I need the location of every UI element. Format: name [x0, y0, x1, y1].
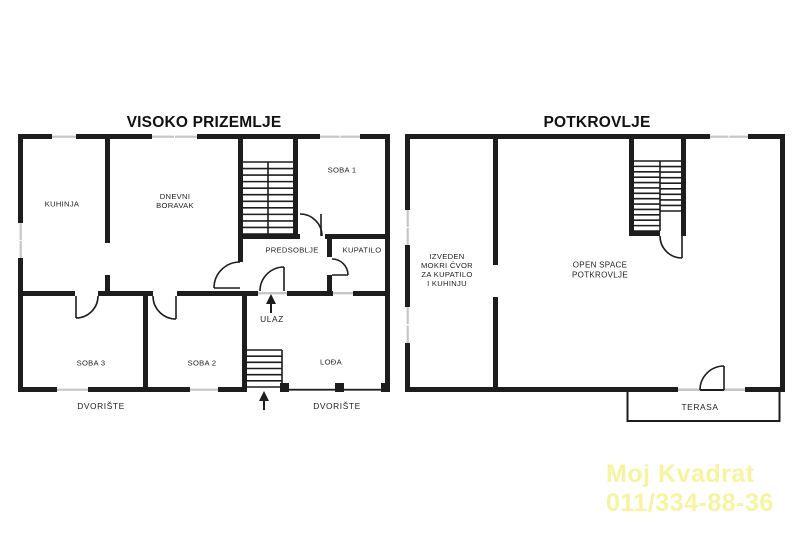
attic-door-swings: [660, 236, 724, 390]
label-terasa: TERASA: [681, 402, 718, 412]
entry-stairs-arrow-icon: [259, 391, 269, 410]
label-dvoriste-right: DVORIŠTE: [313, 401, 361, 411]
room-label-line: MOKRI ČVOR: [421, 261, 473, 270]
entry-threshold: [258, 292, 287, 294]
main-staircase: [243, 162, 293, 234]
room-label-soba2: SOBA 2: [188, 359, 217, 368]
floor-plan-image: VISOKO PRIZEMLJE POTKROVLJE KUHINJA DNEV…: [0, 0, 800, 533]
loggia-post: [280, 383, 289, 392]
loggia-post: [335, 383, 344, 392]
room-label-open-space: OPEN SPACE POTKROVLJE: [572, 261, 628, 280]
door-swing-kupatilo: [332, 259, 348, 275]
room-label-kuhinja: KUHINJA: [45, 200, 80, 209]
door-swing-terrace: [700, 366, 724, 390]
ground-windows: [18, 134, 360, 392]
room-label-soba1: SOBA 1: [328, 166, 357, 175]
door-swing-dnevni: [214, 262, 240, 288]
room-label-line: ZA KUPATILO: [421, 270, 473, 279]
door-swing-soba3: [76, 296, 98, 318]
ground-floor-plan: [18, 134, 390, 410]
attic-staircase: [634, 161, 681, 231]
door-swing-soba2: [153, 296, 176, 319]
room-label-line: I KUHINJU: [421, 279, 473, 288]
room-label-line: IZVEDEN: [421, 252, 473, 261]
room-label-line: OPEN SPACE: [572, 261, 628, 271]
floor-plan-drawing: [0, 0, 800, 533]
watermark-line2: 011/334-88-36: [606, 489, 774, 518]
room-label-predsoblje: PREDSOBLJE: [265, 246, 318, 255]
room-label-line: POTKROVLJE: [572, 270, 628, 280]
label-ulaz: ULAZ: [260, 314, 284, 324]
ulaz-up-arrow-icon: [266, 294, 276, 313]
room-label-dnevni-boravak: DNEVNI BORAVAK: [156, 192, 194, 210]
attic-plan-title: POTKROVLJE: [543, 114, 650, 132]
door-swing-soba1: [300, 214, 322, 236]
label-dvoriste-left: DVORIŠTE: [77, 401, 125, 411]
room-label-lodja: LOĐA: [320, 358, 342, 367]
ground-plan-title: VISOKO PRIZEMLJE: [127, 114, 282, 132]
entry-staircase: [247, 350, 282, 387]
watermark-line1: Moj Kvadrat: [606, 460, 755, 489]
room-label-line: BORAVAK: [156, 201, 194, 210]
room-label-kupatilo: KUPATILO: [343, 246, 382, 255]
loggia-edge: [280, 383, 390, 392]
room-label-soba3: SOBA 3: [77, 359, 106, 368]
door-swing-stairs: [660, 236, 682, 258]
ground-door-swings: [76, 214, 348, 319]
room-label-mokri-cvor: IZVEDEN MOKRI ČVOR ZA KUPATILO I KUHINJU: [421, 252, 473, 288]
loggia-post: [381, 383, 390, 392]
door-swing-ulaz: [260, 267, 284, 291]
room-label-line: DNEVNI: [156, 192, 194, 201]
